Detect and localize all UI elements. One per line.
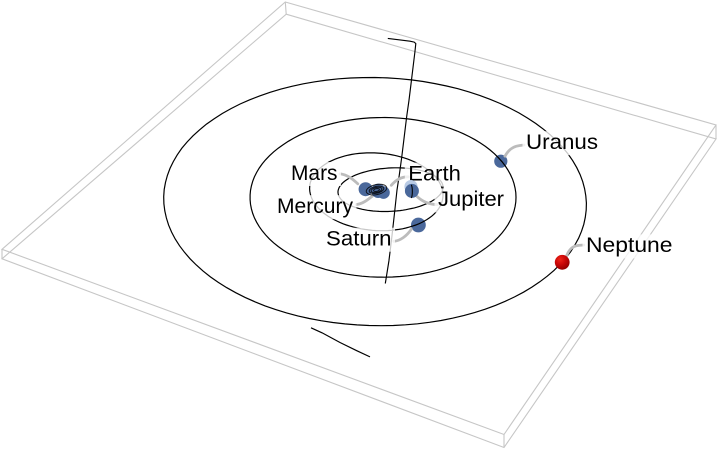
svg-text:Jupiter: Jupiter: [438, 188, 504, 211]
svg-text:Mercury: Mercury: [277, 195, 353, 218]
svg-text:Earth: Earth: [408, 162, 461, 185]
svg-text:Neptune: Neptune: [586, 234, 673, 257]
svg-text:Mars: Mars: [291, 162, 338, 185]
svg-text:Saturn: Saturn: [326, 228, 392, 251]
svg-text:Uranus: Uranus: [526, 131, 598, 154]
